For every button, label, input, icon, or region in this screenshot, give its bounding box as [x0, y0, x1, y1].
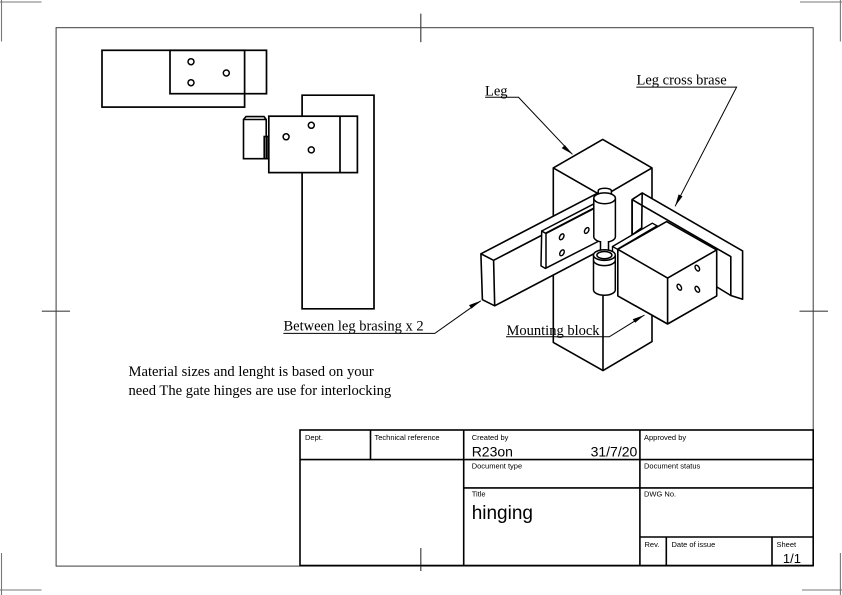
svg-text:Approved by: Approved by	[644, 433, 686, 442]
svg-text:31/7/20: 31/7/20	[591, 444, 638, 460]
svg-text:Technical reference: Technical reference	[375, 433, 440, 442]
svg-text:1/1: 1/1	[783, 551, 801, 566]
svg-text:need The gate hinges are use f: need The gate hinges are use for interlo…	[129, 383, 392, 399]
svg-text:Sheet: Sheet	[777, 540, 798, 549]
svg-text:Created by: Created by	[472, 433, 509, 442]
svg-text:Between leg brasing x 2: Between leg brasing x 2	[284, 318, 424, 334]
svg-text:Material sizes and lenght is b: Material sizes and lenght is based on yo…	[129, 364, 374, 380]
svg-text:Title: Title	[472, 490, 486, 499]
svg-text:DWG No.: DWG No.	[644, 490, 676, 499]
svg-text:Leg cross brase: Leg cross brase	[637, 72, 727, 88]
svg-text:Document type: Document type	[472, 462, 522, 471]
svg-text:Document status: Document status	[644, 462, 701, 471]
svg-text:Rev.: Rev.	[645, 540, 660, 549]
svg-text:hinging: hinging	[472, 503, 533, 524]
svg-text:R23on: R23on	[472, 444, 513, 460]
svg-text:Dept.: Dept.	[305, 433, 323, 442]
svg-text:Date of issue: Date of issue	[672, 540, 716, 549]
